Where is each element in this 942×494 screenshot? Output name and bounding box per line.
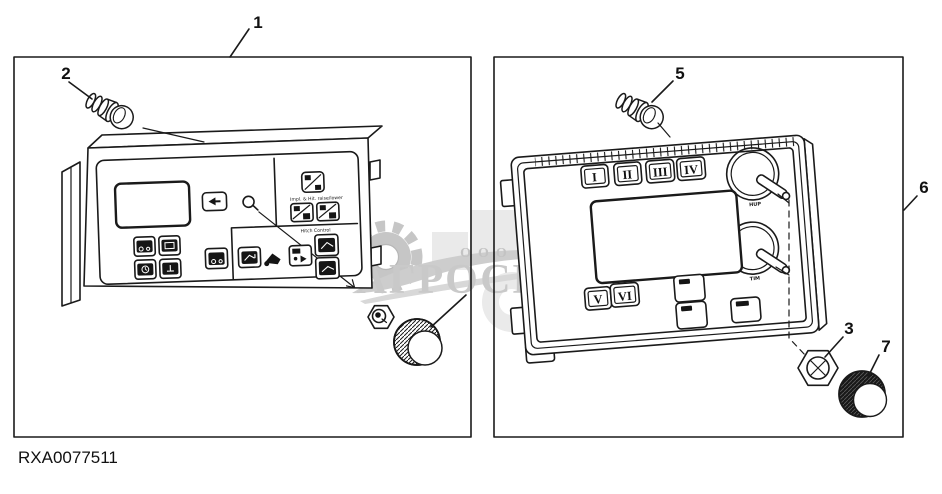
left-console-tab-top bbox=[370, 160, 380, 180]
scv-button-5-label: V bbox=[593, 292, 603, 307]
pto-disable-button bbox=[302, 172, 325, 193]
scv-button-6-label: VI bbox=[617, 289, 632, 304]
callout-5-label: 5 bbox=[675, 64, 684, 83]
callout-2-leader bbox=[69, 82, 92, 99]
callout-5-leader bbox=[652, 81, 673, 102]
impl-lower-button bbox=[317, 202, 340, 221]
impl-raise-button bbox=[291, 203, 314, 222]
right-console-body: I II III IV HUP bbox=[499, 134, 828, 364]
figure-code: RXA0077511 bbox=[18, 448, 118, 467]
scv-button-4-label: IV bbox=[684, 162, 699, 177]
callout-3-leader bbox=[825, 337, 843, 357]
service-alert-button bbox=[160, 259, 182, 279]
callout-6-label: 6 bbox=[919, 178, 928, 197]
screw5-leader-line bbox=[658, 123, 670, 137]
parts-diagram-page: ООО АГРОСНАБ bbox=[0, 0, 942, 494]
knurled-knob bbox=[839, 371, 887, 417]
tractor-perf-button bbox=[134, 237, 156, 257]
test-button bbox=[730, 297, 761, 323]
hitch-control-label: Hitch Control bbox=[300, 227, 330, 234]
callout-1-leader bbox=[230, 29, 249, 57]
display-select-button bbox=[159, 236, 181, 256]
left-console: Impl. & Hit. raise/lower Hitch Control bbox=[62, 126, 382, 306]
hitch-lower-button bbox=[238, 247, 261, 268]
timer-button bbox=[135, 260, 157, 280]
callout-3-label: 3 bbox=[844, 319, 853, 338]
left-lcd-display bbox=[115, 181, 190, 228]
shaft-hex-nut bbox=[798, 351, 838, 386]
scv-button-2-label: II bbox=[622, 167, 633, 182]
parts-diagram-canvas: ООО АГРОСНАБ bbox=[0, 0, 942, 494]
callout-7-label: 7 bbox=[881, 337, 890, 356]
left-adjust-knob bbox=[394, 319, 442, 365]
callout-6-leader bbox=[904, 196, 917, 210]
left-console-tab-bottom bbox=[371, 246, 381, 266]
time-knob-label: TIM bbox=[750, 276, 761, 283]
tractor-mode-button bbox=[205, 248, 228, 269]
scv-button-3-label: III bbox=[652, 165, 668, 180]
set-buttons bbox=[673, 274, 707, 329]
right-console: I II III IV HUP bbox=[499, 134, 828, 364]
callout-1-label: 1 bbox=[253, 13, 262, 32]
back-button bbox=[202, 192, 227, 211]
raise-knob-label: HUP bbox=[749, 201, 762, 208]
left-adjust-nut bbox=[368, 306, 394, 329]
hitch-mode-button bbox=[289, 245, 312, 266]
right-lcd-display bbox=[590, 190, 742, 283]
callout-2-label: 2 bbox=[61, 64, 70, 83]
mounting-screw-left bbox=[82, 89, 137, 133]
